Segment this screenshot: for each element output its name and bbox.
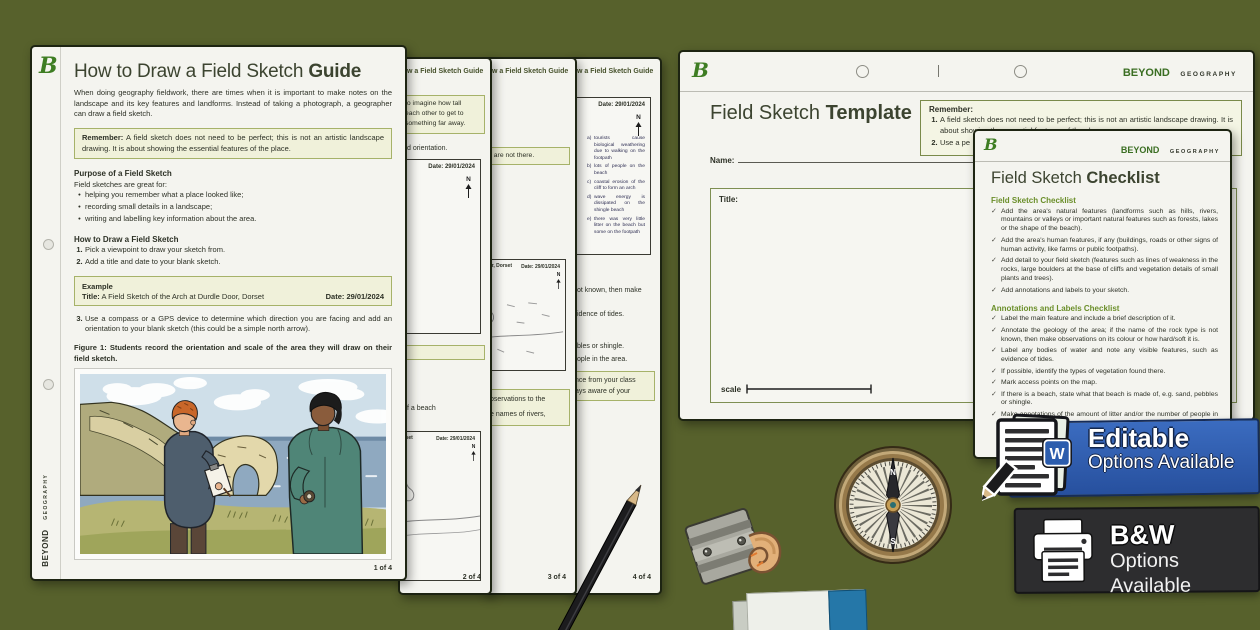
checklist-section-heading: Field Sketch Checklist bbox=[991, 196, 1218, 205]
text-fragment: idence of tides. bbox=[577, 311, 624, 318]
example-title: Title: A Field Sketch of the Arch at Dur… bbox=[82, 292, 264, 301]
printer-icon bbox=[1028, 517, 1100, 586]
blank-sketch-box: Date: 29/01/2024 N bbox=[398, 159, 481, 334]
header-rule bbox=[975, 161, 1230, 162]
example-sketch-box: Door, Dorset Date: 29/01/2024 N bbox=[483, 259, 566, 371]
page-title: Field Sketch Template bbox=[710, 102, 912, 125]
checklist-item: ✓Label any bodies of water and note any … bbox=[991, 347, 1218, 365]
editable-options-badge[interactable]: Editable Options Available W bbox=[982, 412, 1260, 502]
page-header-fragment: w a Field Sketch Guide bbox=[407, 68, 484, 75]
note-box-fragment: bservations to the e names of rivers, bbox=[483, 389, 570, 426]
north-arrow-icon bbox=[471, 451, 476, 461]
example-sketch-box: Dorset Date: 29/01/2024 N bbox=[398, 431, 481, 581]
word-document-pencil-icon: W bbox=[982, 412, 1082, 502]
header-rule bbox=[680, 91, 1253, 92]
coastline-sketch-icon bbox=[483, 292, 565, 362]
beyond-geography-vertical-brand: BEYOND GEOGRAPHY bbox=[37, 474, 55, 567]
beyond-geography-brand: BEYOND GEOGRAPHY bbox=[1121, 140, 1220, 158]
page-title: How to Draw a Field Sketch Guide bbox=[74, 61, 392, 83]
figure-caption: Figure 1: Students record the orientatio… bbox=[74, 343, 392, 364]
north-arrow: N bbox=[635, 114, 642, 136]
numbered-step: 1.Pick a viewpoint to draw your sketch f… bbox=[74, 245, 392, 256]
page-number: 2 of 4 bbox=[463, 574, 481, 581]
example-box: Example Title: A Field Sketch of the Arc… bbox=[74, 276, 392, 306]
checklist-page: B BEYOND GEOGRAPHY Field Sketch Checklis… bbox=[973, 129, 1232, 459]
checklist-item: ✓If possible, identify the types of vege… bbox=[991, 368, 1218, 377]
figure-frame bbox=[74, 368, 392, 560]
bw-options-badge[interactable]: B&W Options Available bbox=[1014, 506, 1260, 594]
checklist-item: ✓Add the area's human features, if any (… bbox=[991, 237, 1218, 255]
text-fragment: ople in the area. bbox=[577, 356, 627, 363]
margin-line bbox=[60, 47, 61, 579]
guide-page-2: w a Field Sketch Guide to imagine how ta… bbox=[398, 57, 492, 595]
bullet-item: •writing and labelling key information a… bbox=[74, 214, 392, 225]
date-label: Date: 29/01/2024 bbox=[428, 164, 475, 170]
beyond-logo-icon: B bbox=[984, 135, 998, 154]
section-intro: Field sketches are great for: bbox=[74, 180, 392, 189]
pencil-object bbox=[540, 458, 670, 630]
checklist-item: ✓Label the main feature and include a br… bbox=[991, 315, 1218, 324]
intro-paragraph: When doing geography fieldwork, there ar… bbox=[74, 88, 392, 120]
example-date: Date: 29/01/2024 bbox=[326, 292, 384, 301]
north-arrow-icon bbox=[465, 184, 472, 198]
date-label: Date: 29/01/2024 bbox=[598, 102, 645, 108]
remember-box: Remember: A field sketch does not need t… bbox=[74, 128, 392, 159]
name-field[interactable]: Name: bbox=[710, 156, 1010, 165]
text-fragment: f a beach bbox=[407, 405, 436, 412]
date-label: Date: 29/01/2024 bbox=[521, 264, 560, 270]
checklist-section-heading: Annotations and Labels Checklist bbox=[991, 304, 1218, 313]
annotated-sketch-box: Date: 29/01/2024 N a)tourists cause biol… bbox=[568, 97, 651, 255]
page-header-fragment: w a Field Sketch Guide bbox=[577, 68, 654, 75]
compass-object: N S bbox=[833, 445, 953, 565]
checklist-item: ✓Add the area's natural features (landfo… bbox=[991, 208, 1218, 235]
svg-text:N: N bbox=[890, 468, 896, 477]
page-header-fragment: w a Field Sketch Guide bbox=[492, 68, 569, 75]
scale-bar-icon bbox=[745, 384, 873, 394]
numbered-step: 3.Use a compass or a GPS device to deter… bbox=[74, 314, 392, 336]
north-arrow-icon bbox=[556, 279, 561, 289]
bullet-item: •helping you remember what a place looke… bbox=[74, 190, 392, 201]
north-arrow: N bbox=[465, 176, 472, 198]
north-arrow: N bbox=[556, 272, 561, 289]
section-heading: How to Draw a Field Sketch bbox=[74, 235, 392, 244]
guide-page-1: B BEYOND GEOGRAPHY How to Draw a Field S… bbox=[30, 45, 407, 581]
page-title: Field Sketch Checklist bbox=[991, 169, 1218, 188]
text-fragment: bles or shingle. bbox=[577, 343, 624, 350]
note-box-fragment: to imagine how tall each other to get to… bbox=[398, 95, 485, 134]
pencil-sharpener-object bbox=[681, 498, 793, 598]
registration-mark bbox=[938, 65, 939, 77]
section-heading: Purpose of a Field Sketch bbox=[74, 169, 392, 178]
checklist-item: ✓Add detail to your field sketch (featur… bbox=[991, 257, 1218, 284]
svg-text:W: W bbox=[1049, 446, 1065, 463]
eraser-object bbox=[733, 591, 873, 630]
page-number: 1 of 4 bbox=[374, 565, 392, 572]
bw-badge-subtitle: Options Available bbox=[1110, 548, 1258, 599]
date-label: Date: 29/01/2024 bbox=[436, 436, 475, 442]
hole-punch-icon bbox=[43, 379, 54, 390]
editable-badge-subtitle: Options Available bbox=[1088, 452, 1234, 474]
editable-badge-title: Editable bbox=[1088, 425, 1234, 452]
scale-bar: scale bbox=[721, 384, 873, 394]
promo-image: w a Field Sketch Guide Date: 29/01/2024 … bbox=[0, 0, 1260, 630]
note-box-fragment bbox=[398, 345, 485, 360]
beyond-logo-icon: B bbox=[692, 58, 709, 82]
hole-punch-icon bbox=[1014, 65, 1027, 78]
bullet-item: •recording small details in a landscape; bbox=[74, 202, 392, 213]
annotation-list: a)tourists cause biological weathering d… bbox=[587, 134, 645, 237]
text-fragment: ot known, then make bbox=[577, 287, 642, 294]
hole-punch-icon bbox=[856, 65, 869, 78]
beyond-logo-icon: B bbox=[39, 53, 58, 79]
checklist-item: ✓Annotate the geology of the area; if th… bbox=[991, 327, 1218, 345]
note-box-fragment: t are not there. bbox=[483, 147, 570, 165]
svg-text:S: S bbox=[890, 537, 896, 546]
coastline-sketch-icon bbox=[398, 472, 480, 562]
checklist-item: ✓Mark access points on the map. bbox=[991, 379, 1218, 388]
name-input-line[interactable] bbox=[738, 156, 1010, 163]
text-fragment: d orientation. bbox=[407, 145, 447, 152]
bw-badge-title: B&W bbox=[1110, 521, 1258, 549]
hole-punch-icon bbox=[43, 239, 54, 250]
checklist-item: ✓If there is a beach, state what that be… bbox=[991, 391, 1218, 409]
checklist-item: ✓Add annotations and labels to your sket… bbox=[991, 287, 1218, 296]
north-arrow: N bbox=[471, 444, 476, 461]
numbered-step: 2.Add a title and date to your blank ske… bbox=[74, 257, 392, 268]
beyond-geography-brand: BEYOND GEOGRAPHY bbox=[1123, 63, 1237, 81]
note-box-fragment: nce from your class ays aware of your bbox=[568, 371, 655, 401]
field-sketch-illustration bbox=[80, 374, 386, 554]
